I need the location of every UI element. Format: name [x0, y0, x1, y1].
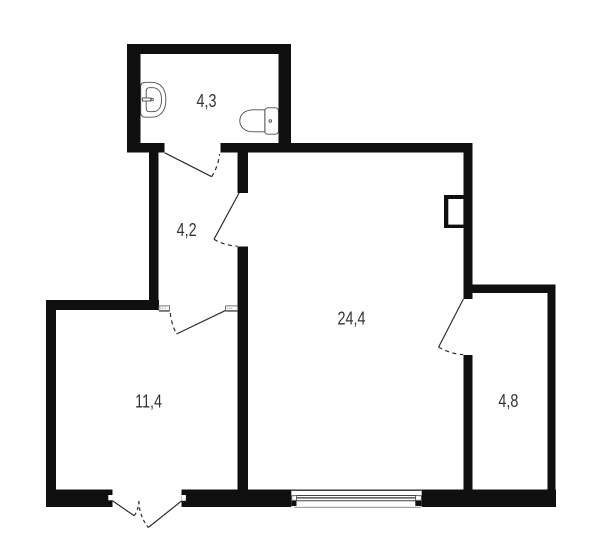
svg-text:4,8: 4,8: [498, 391, 518, 411]
svg-text:24,4: 24,4: [338, 309, 366, 329]
svg-text:4,2: 4,2: [177, 221, 197, 241]
svg-text:4,3: 4,3: [197, 91, 217, 111]
svg-text:11,4: 11,4: [135, 392, 162, 412]
